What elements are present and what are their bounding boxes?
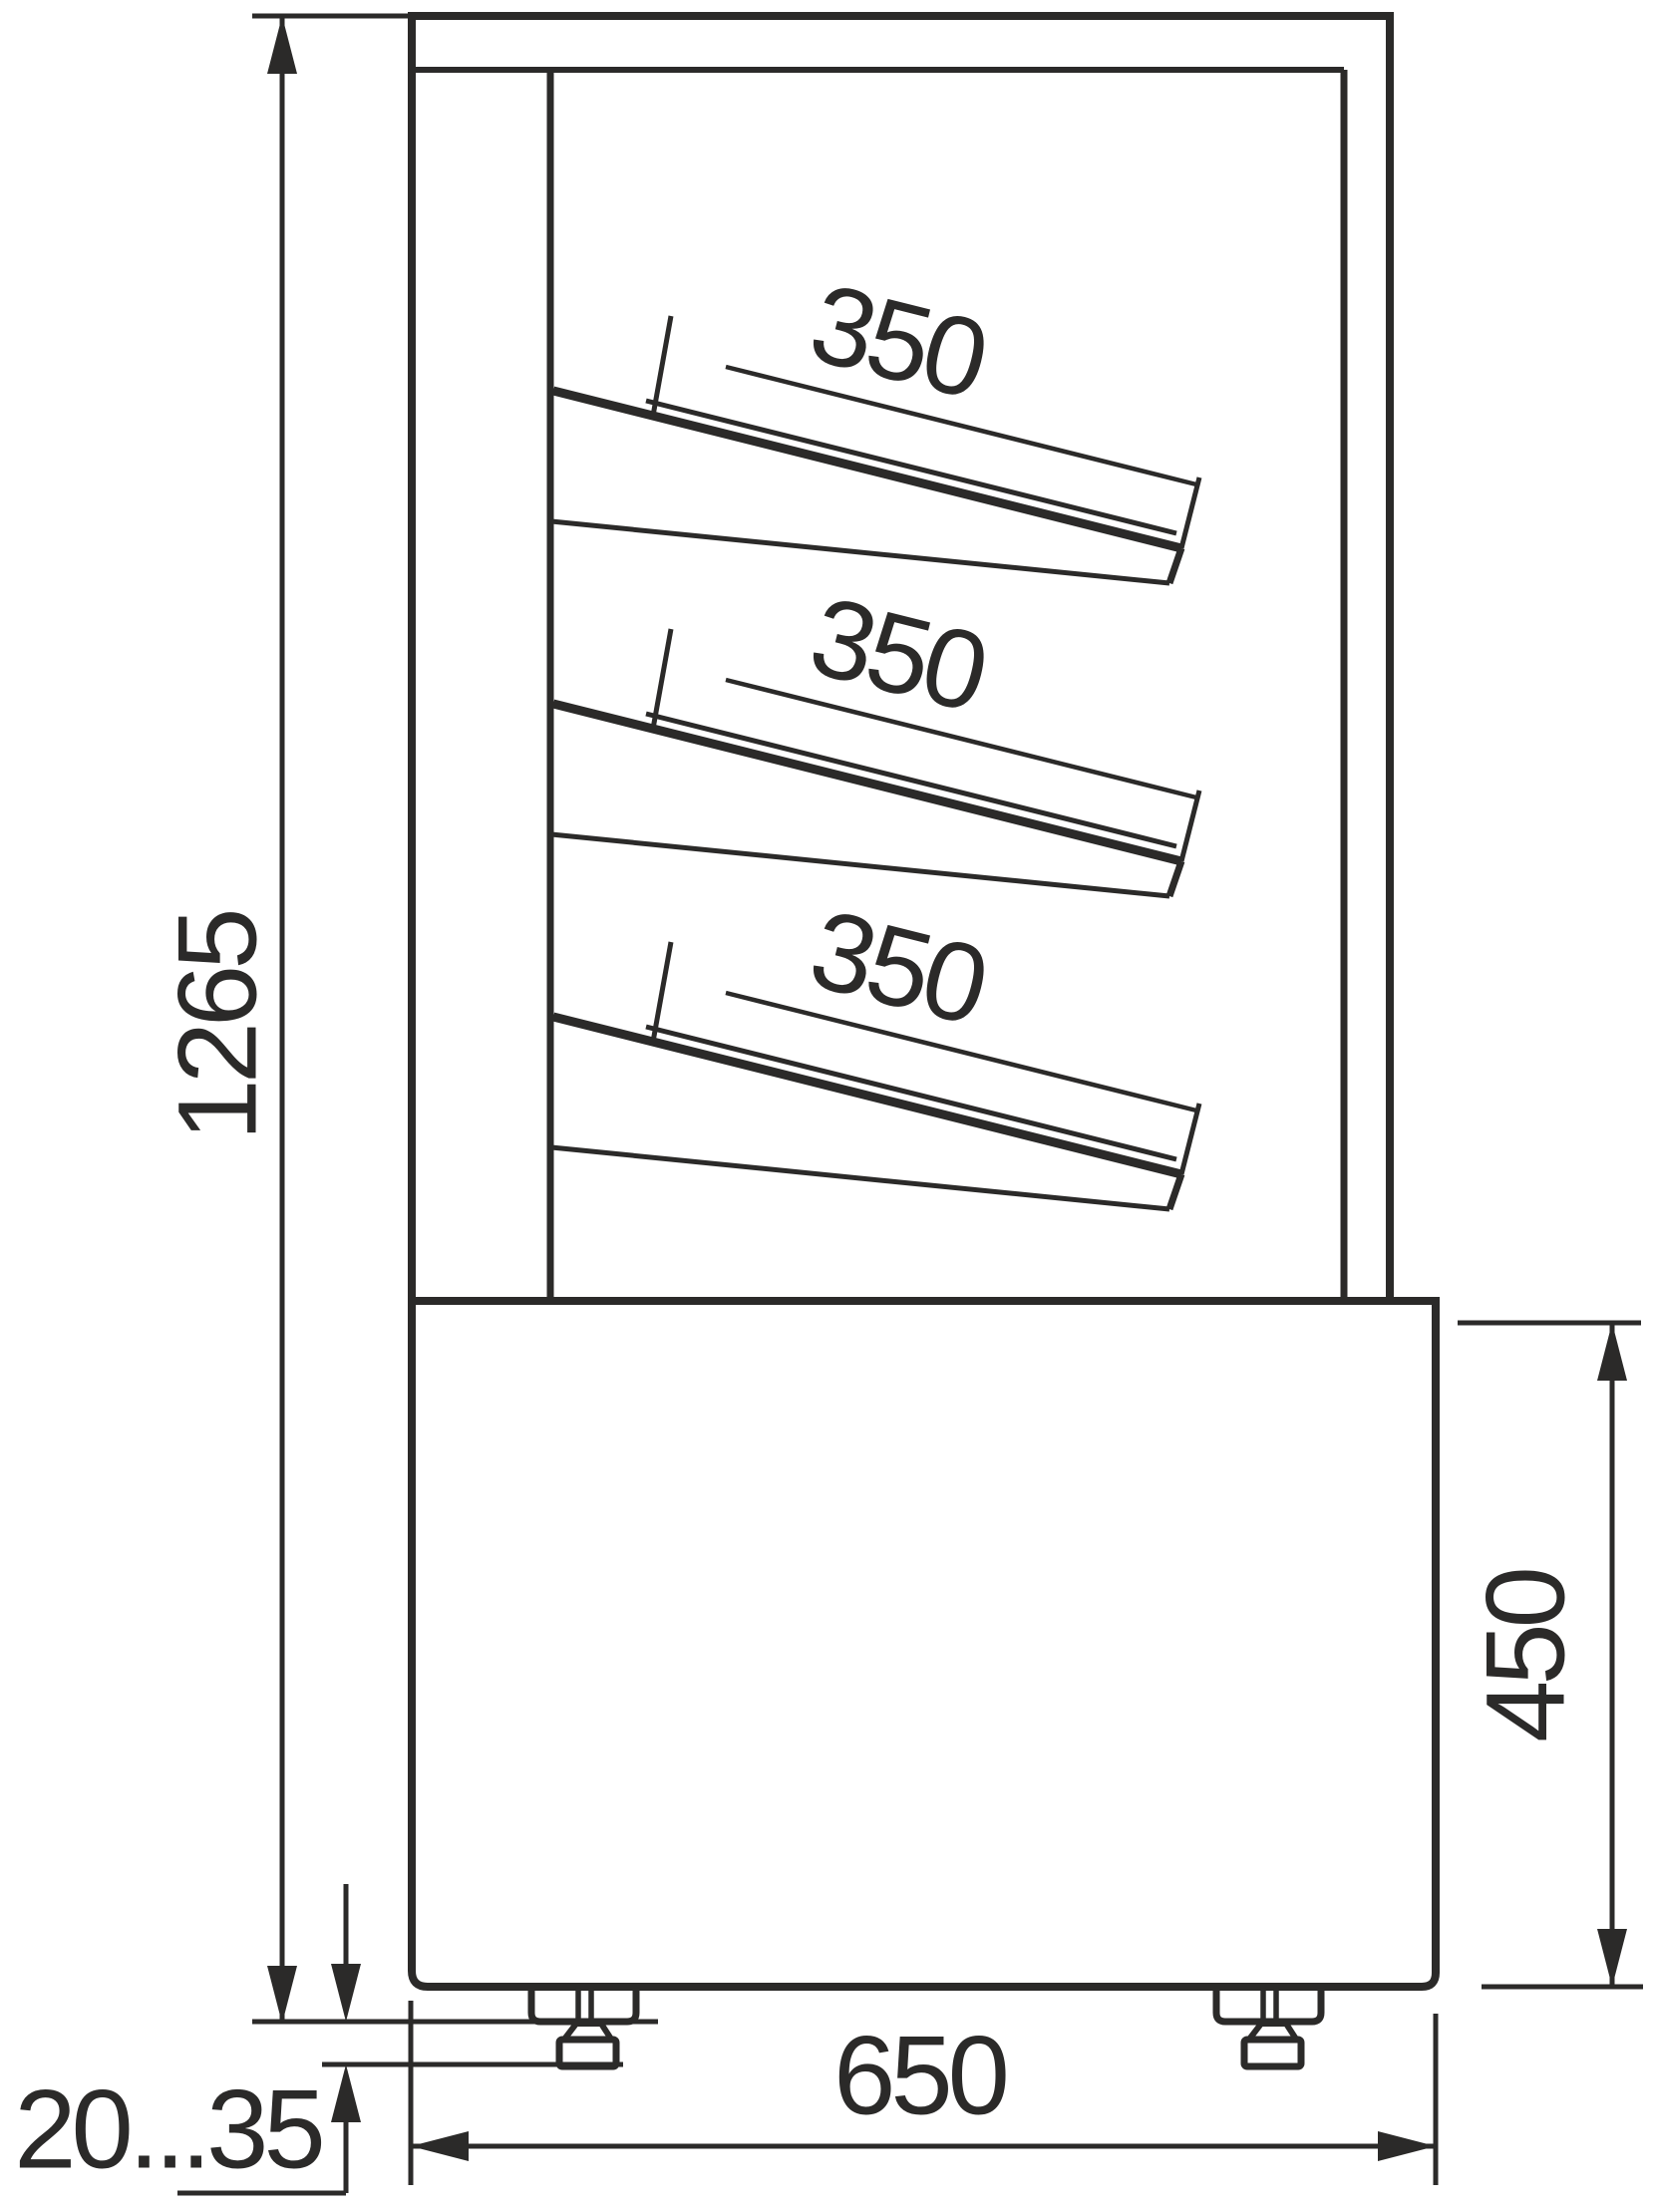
arrow-down-icon [1597,1929,1627,1987]
adjustable-foot-left [531,1987,636,2066]
technical-drawing-canvas: 350 350 350 [0,0,1654,2212]
dim-shelf-depth-2-label: 350 [799,573,996,736]
shelf-1-board [553,391,1181,548]
adjustable-foot-right [1216,1987,1321,2066]
shelf-1-lip [1181,477,1199,548]
shelf-3-lip [1181,1104,1199,1174]
shelf-1-dim-tick [653,316,671,416]
arrow-up-icon [267,16,297,74]
shelf-2-board [553,704,1181,861]
dim-overall-depth: 650 [411,2001,1436,2185]
shelf-3-front-edge [1169,1174,1181,1209]
dim-base-height: 450 [1458,1323,1643,1987]
dim-overall-depth-label: 650 [833,2014,1006,2138]
base-right-edge [1422,1301,1436,1987]
shelf-2-lip [1181,790,1199,861]
shelf-2-underside [551,834,1169,896]
dim-shelf-depth-1-label: 350 [799,260,996,423]
shelf-1-front-edge [1169,548,1181,583]
shelf-2: 350 [551,573,1199,896]
dim-base-height-label: 450 [1464,1570,1588,1742]
dim-overall-height-label: 1265 [156,912,280,1141]
shelf-1-underside [551,521,1169,583]
arrow-down-icon [267,1966,297,2024]
foot-right-bolt-housing [1216,1987,1321,2022]
shelf-1: 350 [551,260,1199,583]
left-outer-wall [412,16,428,1987]
shelf-3-top-edge [646,1027,1176,1159]
shelf-2-top-edge [646,714,1176,846]
shelf-2-dim-tick [653,629,671,729]
arrow-up-icon [331,2064,361,2122]
arrow-down-icon [331,1964,361,2022]
foot-left-bolt-housing [531,1987,636,2022]
arrow-up-icon [1597,1323,1627,1381]
dim-shelf-depth-3-label: 350 [799,886,996,1049]
shelf-2-front-edge [1169,861,1181,896]
foot-right-pad [1244,2040,1301,2066]
arrow-left-icon [411,2131,469,2161]
shelf-3-board [553,1017,1181,1174]
dim-foot-range-label: 20...35 [14,2067,321,2192]
shelf-3-underside [551,1147,1169,1209]
arrow-right-icon [1378,2131,1436,2161]
shelf-3-dim-tick [653,942,671,1042]
shelf-1-top-edge [646,401,1176,533]
shelf-3: 350 [551,886,1199,1209]
display-case-side-view-drawing: 350 350 350 [0,0,1654,2212]
